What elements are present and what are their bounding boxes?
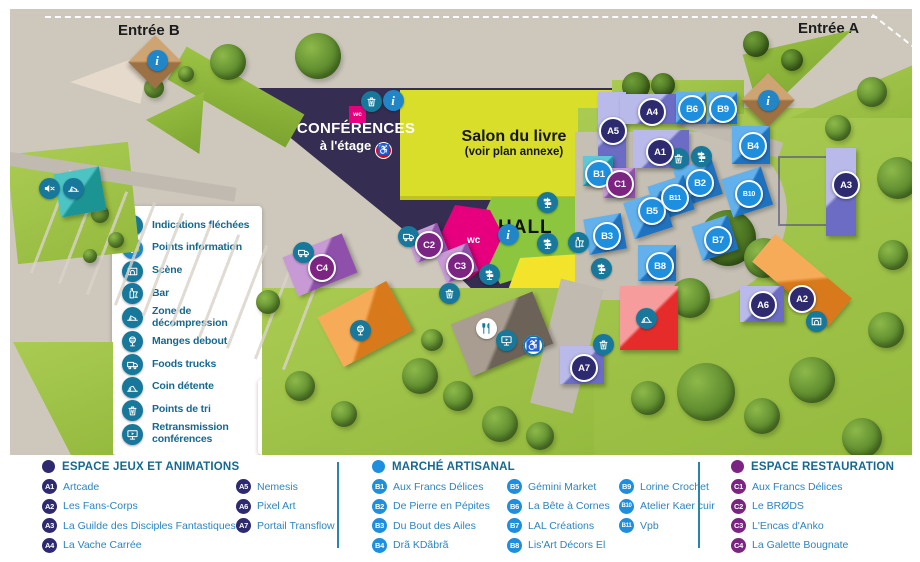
screen-icon	[122, 424, 143, 445]
section-title: MARCHÉ ARTISANAL	[392, 461, 515, 473]
stand-badge-b11: B11	[619, 518, 634, 533]
legend-item: Retransmission conférences	[122, 422, 254, 446]
stand-badge-c2: C2	[731, 499, 746, 514]
section-title: ESPACE RESTAURATION	[751, 461, 894, 473]
recycle-icon	[593, 334, 614, 355]
legend-item-label: Points de tri	[152, 404, 211, 416]
event-site-map: Entrée B Entrée A CONFÉRENCES à l'étage♿…	[0, 0, 920, 562]
recycle-icon	[361, 91, 382, 112]
tree	[631, 381, 665, 415]
tree	[83, 249, 97, 263]
stand-badge-b9: B9	[619, 479, 634, 494]
frame	[0, 0, 10, 455]
tree	[878, 240, 908, 270]
section-column: A1ArtcadeA2Les Fans-CorpsA3La Guilde des…	[42, 479, 236, 553]
deckchair-icon	[63, 178, 84, 199]
list-item: A4La Vache Carrée	[42, 538, 236, 553]
info-icon: i	[383, 90, 404, 111]
grass-area	[13, 342, 113, 455]
directory-section-marche: MARCHÉ ARTISANALB1Aux Francs DélicesB2De…	[372, 460, 729, 553]
section-column: B9Lorine CrochetB10Atelier Kaer cuirB11V…	[619, 479, 729, 553]
stand-name: Aux Francs Délices	[393, 481, 483, 493]
section-header: ESPACE JEUX ET ANIMATIONS	[42, 460, 356, 473]
stand-badge-b10: B10	[619, 499, 634, 514]
mute-icon	[39, 178, 60, 199]
legend-item: Foods trucks	[122, 354, 254, 375]
list-item: B8Lis'Art Décors El	[507, 538, 619, 553]
stand-badge-b4: B4	[372, 538, 387, 553]
section-column: B1Aux Francs DélicesB2De Pierre en Pépit…	[372, 479, 507, 553]
stand-badge-b5: B5	[507, 479, 522, 494]
map-marker-a7: A7	[570, 354, 598, 382]
map-marker-b9: B9	[709, 95, 737, 123]
info-icon: i	[758, 90, 779, 111]
list-item: C2Le BRØDS	[731, 499, 911, 514]
stand-badge-b8: B8	[507, 538, 522, 553]
tree	[210, 44, 246, 80]
section-bullet	[42, 460, 55, 473]
tree	[781, 49, 803, 71]
stand-name: Portail Transflow	[257, 520, 335, 532]
map-marker-a4: A4	[638, 98, 666, 126]
signpost-icon	[537, 192, 558, 213]
stand-name: La Guilde des Disciples Fantastiques	[63, 520, 236, 532]
section-columns: C1Aux Francs DélicesC2Le BRØDSC3L'Encas …	[731, 479, 911, 553]
map-marker-b10: B10	[735, 180, 763, 208]
food-truck-icon	[122, 354, 143, 375]
map-marker-a6: A6	[749, 291, 777, 319]
recycle-icon	[122, 400, 143, 421]
list-item: B5Gémini Market	[507, 479, 619, 494]
tree	[331, 401, 357, 427]
screen-icon	[496, 330, 517, 351]
stand-name: Drã KDãbrã	[393, 539, 448, 551]
stand-badge-b6: B6	[507, 499, 522, 514]
lounge-icon	[636, 308, 657, 329]
section-divider	[698, 462, 700, 548]
section-divider	[337, 462, 339, 548]
map-marker-c2: C2	[415, 231, 443, 259]
directory-section-animations: ESPACE JEUX ET ANIMATIONSA1ArtcadeA2Les …	[42, 460, 356, 553]
stand-name: Du Bout des Ailes	[393, 520, 476, 532]
legend-item-label: Foods trucks	[152, 359, 216, 371]
legend-item-label: Coin détente	[152, 381, 214, 393]
map-marker-c1: C1	[606, 170, 634, 198]
list-item: C4La Galette Bougnate	[731, 538, 911, 553]
tree	[825, 115, 851, 141]
tree	[482, 406, 518, 442]
stand-badge-a6: A6	[236, 499, 251, 514]
map-marker-a1: A1	[646, 138, 674, 166]
tree	[256, 290, 280, 314]
map-marker-b6: B6	[678, 95, 706, 123]
lounge-icon	[122, 377, 143, 398]
entrance-a-label: Entrée A	[798, 20, 859, 37]
stand-badge-c4: C4	[731, 538, 746, 553]
tree	[744, 398, 780, 434]
list-item: A3La Guilde des Disciples Fantastiques	[42, 518, 236, 533]
no-access-icon: ♿	[375, 142, 392, 159]
list-item: A2Les Fans-Corps	[42, 499, 236, 514]
stand-name: Le BRØDS	[752, 500, 804, 512]
stand-name: L'Encas d'Anko	[752, 520, 824, 532]
section-header: MARCHÉ ARTISANAL	[372, 460, 729, 473]
frame	[0, 0, 920, 9]
stand-badge-a1: A1	[42, 479, 57, 494]
tree	[842, 418, 882, 455]
list-item: B11Vpb	[619, 518, 729, 533]
tree	[677, 363, 735, 421]
stand-badge-b3: B3	[372, 518, 387, 533]
list-item: B7LAL Créations	[507, 518, 619, 533]
section-bullet	[731, 460, 744, 473]
conference-building-label: CONFÉRENCES à l'étage♿	[295, 120, 417, 159]
legend-item: Coin détente	[122, 377, 254, 398]
map-area: Entrée B Entrée A CONFÉRENCES à l'étage♿…	[0, 0, 920, 455]
tree	[857, 77, 887, 107]
stand-name: Lis'Art Décors El	[528, 539, 605, 551]
section-bullet	[372, 460, 385, 473]
stand-name: La Galette Bougnate	[752, 539, 848, 551]
grass-area	[146, 92, 204, 154]
stand-name: La Bête à Cornes	[528, 500, 610, 512]
cutlery-icon	[476, 318, 497, 339]
list-item: B2De Pierre en Pépites	[372, 499, 507, 514]
stage-icon	[806, 311, 827, 332]
accessible-icon: ♿	[523, 335, 544, 356]
recycle-icon	[439, 283, 460, 304]
list-item: B4Drã KDãbrã	[372, 538, 507, 553]
signpost-icon	[537, 233, 558, 254]
list-item: C1Aux Francs Délices	[731, 479, 911, 494]
info-icon: i	[147, 50, 168, 71]
map-marker-b2: B2	[686, 169, 714, 197]
stand-badge-a4: A4	[42, 538, 57, 553]
bar-icon	[568, 232, 589, 253]
signpost-icon	[691, 146, 712, 167]
legend-item-label: Retransmission conférences	[152, 422, 254, 446]
list-item: B9Lorine Crochet	[619, 479, 729, 494]
info-icon: i	[498, 224, 519, 245]
list-item: B6La Bête à Cornes	[507, 499, 619, 514]
section-title: ESPACE JEUX ET ANIMATIONS	[62, 461, 239, 473]
stand-name: LAL Créations	[528, 520, 594, 532]
tree	[402, 358, 438, 394]
list-item: B10Atelier Kaer cuir	[619, 499, 729, 514]
stand-badge-c3: C3	[731, 518, 746, 533]
tree	[743, 31, 769, 57]
map-marker-c4: C4	[308, 254, 336, 282]
stand-name: Nemesis	[257, 481, 298, 493]
conference-subtitle: à l'étage♿	[295, 138, 417, 159]
list-item: B1Aux Francs Délices	[372, 479, 507, 494]
tree	[526, 422, 554, 450]
stand-name: Artcade	[63, 481, 99, 493]
map-marker-c3: C3	[446, 252, 474, 280]
map-marker-b3: B3	[593, 222, 621, 250]
tree	[421, 329, 443, 351]
stand-name: De Pierre en Pépites	[393, 500, 490, 512]
list-item: A1Artcade	[42, 479, 236, 494]
signpost-icon	[591, 258, 612, 279]
map-marker-b8: B8	[646, 252, 674, 280]
map-marker-b7: B7	[704, 226, 732, 254]
map-marker-b4: B4	[739, 132, 767, 160]
stand-name: Pixel Art	[257, 500, 296, 512]
wc-label: wc	[467, 235, 480, 246]
tree	[108, 232, 124, 248]
stand-badge-a5: A5	[236, 479, 251, 494]
stand-badge-c1: C1	[731, 479, 746, 494]
map-marker-b11: B11	[661, 184, 689, 212]
section-column: C1Aux Francs DélicesC2Le BRØDSC3L'Encas …	[731, 479, 911, 553]
stand-name: Aux Francs Délices	[752, 481, 842, 493]
tree	[789, 357, 835, 403]
standing-table-icon	[122, 331, 143, 352]
legend-item: Points de tri	[122, 400, 254, 421]
section-header: ESPACE RESTAURATION	[731, 460, 911, 473]
tree	[295, 33, 341, 79]
section-column: B5Gémini MarketB6La Bête à CornesB7LAL C…	[507, 479, 619, 553]
tree	[178, 66, 194, 82]
boundary-dashed-line	[45, 16, 877, 18]
map-marker-a5: A5	[599, 117, 627, 145]
section-columns: A1ArtcadeA2Les Fans-CorpsA3La Guilde des…	[42, 479, 356, 553]
tree	[285, 371, 315, 401]
stand-badge-b1: B1	[372, 479, 387, 494]
stand-name: Gémini Market	[528, 481, 596, 493]
list-item: C3L'Encas d'Anko	[731, 518, 911, 533]
entrance-b-label: Entrée B	[118, 22, 180, 39]
stand-name: Atelier Kaer cuir	[640, 500, 715, 512]
list-item: B3Du Bout des Ailes	[372, 518, 507, 533]
signpost-icon	[479, 264, 500, 285]
map-marker-a3: A3	[832, 171, 860, 199]
section-columns: B1Aux Francs DélicesB2De Pierre en Pépit…	[372, 479, 729, 553]
map-marker-a2: A2	[788, 285, 816, 313]
stand-name: Les Fans-Corps	[63, 500, 138, 512]
directory-section-restauration: ESPACE RESTAURATIONC1Aux Francs DélicesC…	[731, 460, 911, 553]
stand-name: La Vache Carrée	[63, 539, 142, 551]
standing-table-icon	[350, 320, 371, 341]
frame	[912, 0, 920, 455]
stand-name: Vpb	[640, 520, 659, 532]
stand-badge-b7: B7	[507, 518, 522, 533]
stand-badge-a2: A2	[42, 499, 57, 514]
stand-badge-a3: A3	[42, 518, 57, 533]
stand-badge-b2: B2	[372, 499, 387, 514]
tree	[443, 381, 473, 411]
stand-badge-a7: A7	[236, 518, 251, 533]
directory-panel: ESPACE JEUX ET ANIMATIONSA1ArtcadeA2Les …	[0, 455, 920, 562]
tree	[868, 312, 904, 348]
